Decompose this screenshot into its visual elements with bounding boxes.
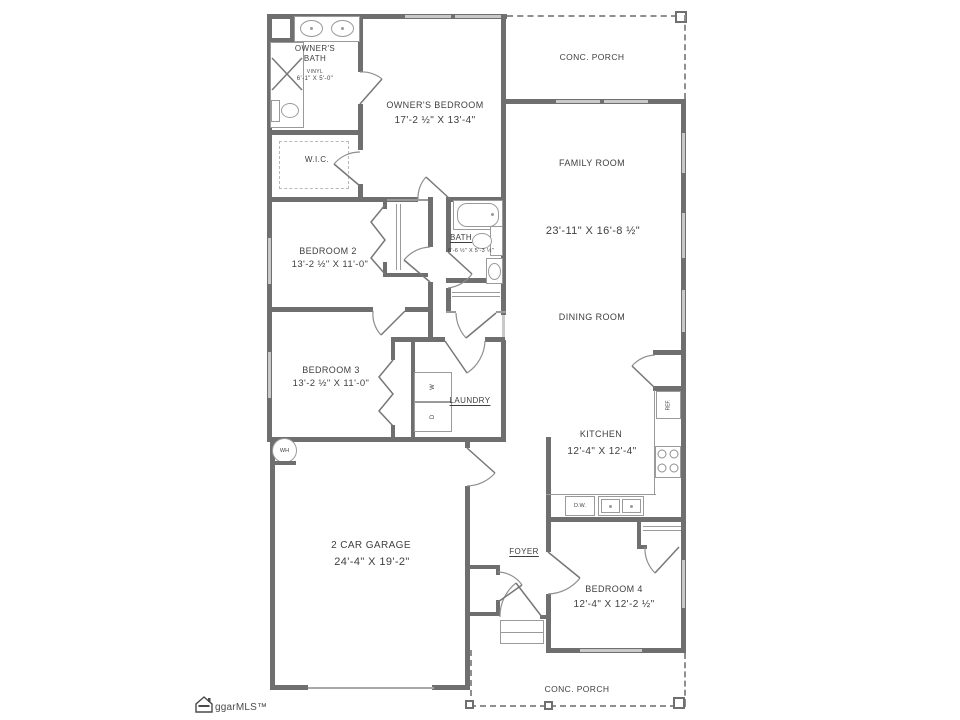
- porch-edge: [470, 705, 686, 707]
- range: [655, 446, 681, 478]
- door-leaf: [548, 552, 580, 578]
- room-label-bedroom3: BEDROOM 3: [302, 365, 360, 377]
- dishwasher-label: D.W.: [574, 503, 586, 509]
- closet-wall: [446, 311, 456, 313]
- room-label-garage: 2 CAR GARAGE: [331, 539, 411, 552]
- wall: [470, 612, 500, 616]
- door-leaf: [498, 585, 522, 602]
- refrigerator-label: REF.: [666, 400, 672, 411]
- closet-shelf: [643, 530, 681, 531]
- wall: [546, 437, 551, 517]
- dryer-label: D: [430, 415, 436, 419]
- closet-wall: [383, 199, 428, 201]
- room-dims-bedroom3: 13'-2 ½" X 11'-0": [293, 378, 370, 390]
- door-leaf: [445, 341, 467, 373]
- door-leaf: [381, 311, 405, 335]
- window: [268, 238, 271, 284]
- room-label-owners-bath: OWNER'S BATH: [284, 44, 346, 65]
- wall: [383, 197, 387, 209]
- room-dims-kitchen: 12'-4" X 12'-4": [567, 445, 636, 458]
- watermark-logo: ggarMLS™: [194, 695, 267, 713]
- sink-drain: [630, 505, 633, 508]
- room-label-porch-bottom: CONC. PORCH: [545, 684, 610, 695]
- house-icon: [194, 695, 214, 713]
- wall: [446, 197, 451, 252]
- room-dims-bath: 8'-6 ½" X 5'-3 ½": [448, 248, 494, 255]
- door-leaf: [448, 252, 472, 274]
- toilet: [281, 103, 299, 118]
- door-arc: [467, 473, 495, 486]
- room-label-kitchen: KITCHEN: [580, 429, 622, 441]
- door-arc: [467, 341, 485, 373]
- room-label-laundry: LAUNDRY: [450, 396, 491, 406]
- door-leaf: [426, 177, 450, 199]
- sink-drain: [609, 505, 612, 508]
- window: [682, 290, 685, 332]
- garage-door-line: [308, 687, 434, 689]
- room-label-foyer: FOYER: [509, 547, 539, 557]
- washer: W: [414, 372, 452, 402]
- door-arc: [418, 177, 426, 199]
- room-label-bedroom4: BEDROOM 4: [585, 584, 643, 596]
- wall: [270, 461, 296, 465]
- door-arc: [456, 313, 466, 338]
- refrigerator-label-box: REF.: [656, 395, 681, 415]
- door-arc: [498, 572, 522, 585]
- floor-plan: W D REF. D.W. WH: [0, 0, 960, 720]
- bifold-door: [379, 360, 393, 426]
- porch-edge: [507, 15, 677, 17]
- stoop-step: [501, 632, 543, 633]
- door-leaf: [632, 366, 655, 388]
- porch-edge: [470, 650, 472, 706]
- wall: [391, 340, 395, 360]
- room-label-bedroom2: BEDROOM 2: [299, 246, 357, 258]
- wall: [637, 517, 641, 545]
- closet-shelf: [396, 204, 397, 270]
- room-dims-owners-bath: 6'-1" X 5'-0": [297, 76, 333, 84]
- door-arc: [645, 547, 655, 573]
- dishwasher: D.W.: [565, 496, 595, 516]
- water-heater: WH: [272, 438, 297, 463]
- wall: [653, 350, 681, 355]
- closet-shelf: [452, 296, 500, 297]
- wall: [267, 437, 506, 442]
- door-arc: [373, 311, 381, 335]
- window: [682, 133, 685, 173]
- room-label-dining: DINING ROOM: [559, 312, 625, 324]
- room-label-bath: BATH: [450, 233, 472, 243]
- door-arc: [632, 355, 655, 366]
- closet-shelf: [400, 204, 401, 270]
- porch-edge: [684, 15, 686, 99]
- wall: [391, 425, 395, 437]
- wall: [428, 197, 433, 247]
- door-arc: [548, 578, 580, 594]
- room-label-family-room: FAMILY ROOM: [559, 158, 625, 170]
- wall: [465, 442, 470, 448]
- porch-post: [465, 700, 474, 709]
- room-dims-bedroom4: 12'-4" X 12'-2 ½": [573, 598, 654, 611]
- door-arc: [360, 72, 382, 79]
- porch-post: [544, 701, 553, 710]
- door-leaf: [466, 313, 496, 338]
- wall: [270, 685, 308, 690]
- wall: [383, 273, 428, 277]
- wall: [546, 517, 686, 522]
- dryer: D: [414, 402, 452, 432]
- wall: [540, 615, 551, 619]
- bath-sink: [472, 233, 492, 249]
- window: [682, 213, 685, 258]
- wall: [546, 594, 551, 648]
- counter-edge: [546, 494, 656, 495]
- room-floor-owners-bath: VINYL: [307, 69, 323, 76]
- wall: [267, 130, 363, 135]
- door-leaf: [404, 260, 430, 282]
- wall: [501, 340, 506, 437]
- window: [455, 15, 501, 18]
- wall: [637, 545, 647, 549]
- faucet: [310, 27, 313, 30]
- wall: [267, 197, 362, 202]
- wall: [496, 565, 500, 575]
- wall: [485, 337, 505, 342]
- wall-tick: [600, 99, 604, 104]
- tub-drain: [491, 213, 494, 216]
- toilet-bowl: [488, 263, 501, 280]
- door-arc: [500, 583, 516, 617]
- water-heater-label: WH: [280, 448, 289, 454]
- door-arc: [404, 247, 430, 260]
- door-leaf: [655, 547, 679, 573]
- window: [580, 649, 642, 652]
- wall: [270, 442, 275, 690]
- faucet: [341, 27, 344, 30]
- door-leaf: [360, 79, 382, 104]
- wall: [546, 517, 551, 552]
- watermark-text: ggarMLS™: [215, 702, 267, 713]
- window: [405, 15, 451, 18]
- washer-label: W: [430, 384, 436, 390]
- room-dims-bedroom2: 13'-2 ½" X 11'-0": [292, 259, 369, 271]
- closet-shelf: [643, 526, 681, 527]
- toilet-tank: [271, 100, 280, 122]
- door-leaf: [516, 583, 542, 617]
- window: [682, 560, 685, 608]
- wall: [358, 135, 363, 150]
- room-dims-family-room: 23'-11" X 16'-8 ½": [546, 224, 640, 238]
- window: [268, 352, 271, 398]
- room-label-owners-bedroom: OWNER'S BEDROOM: [386, 100, 483, 112]
- closet-shelf: [452, 292, 500, 293]
- wall: [446, 288, 451, 313]
- counter-edge: [654, 390, 655, 495]
- door-leaf: [467, 448, 495, 473]
- wall: [405, 307, 433, 312]
- room-dims-owners-bedroom: 17'-2 ½" X 13'-4": [394, 114, 475, 127]
- wall: [428, 282, 433, 342]
- room-label-porch-top: CONC. PORCH: [560, 52, 625, 63]
- closet-wall: [496, 311, 506, 313]
- porch-post: [673, 697, 685, 709]
- wall: [501, 14, 506, 202]
- room-dims-garage: 24'-4" X 19'-2": [334, 555, 410, 569]
- room-label-wic: W.I.C.: [305, 155, 329, 165]
- wall: [267, 307, 373, 312]
- wall: [391, 337, 445, 342]
